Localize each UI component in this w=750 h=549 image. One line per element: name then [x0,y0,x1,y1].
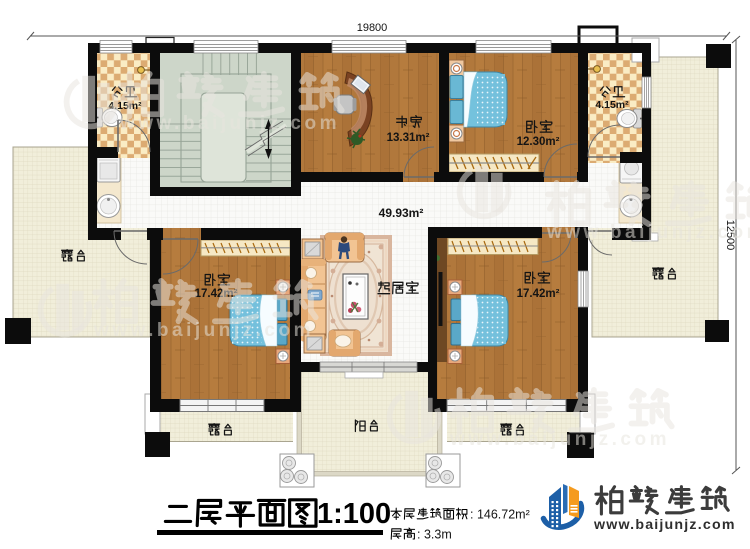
svg-text:17.42m²: 17.42m² [517,288,560,300]
svg-text:19800: 19800 [357,22,388,34]
svg-text:www.baijunjz.com: www.baijunjz.com [593,517,736,533]
svg-text:49.93m²: 49.93m² [379,206,424,220]
svg-text:www.baijunjz.com: www.baijunjz.com [546,222,750,243]
svg-text:www.baijunjz.com: www.baijunjz.com [449,429,670,450]
svg-text:: 146.72m²: : 146.72m² [470,508,530,522]
svg-text:1:100: 1:100 [317,498,391,530]
svg-text:: 3.3m: : 3.3m [417,528,452,542]
svg-text:www.baijunjz.com: www.baijunjz.com [93,320,314,341]
svg-text:13.31m²: 13.31m² [387,132,430,144]
svg-text:www.baijunjz.com: www.baijunjz.com [119,113,340,134]
svg-text:12.30m²: 12.30m² [517,136,560,148]
svg-text:4.15m²: 4.15m² [595,99,629,111]
